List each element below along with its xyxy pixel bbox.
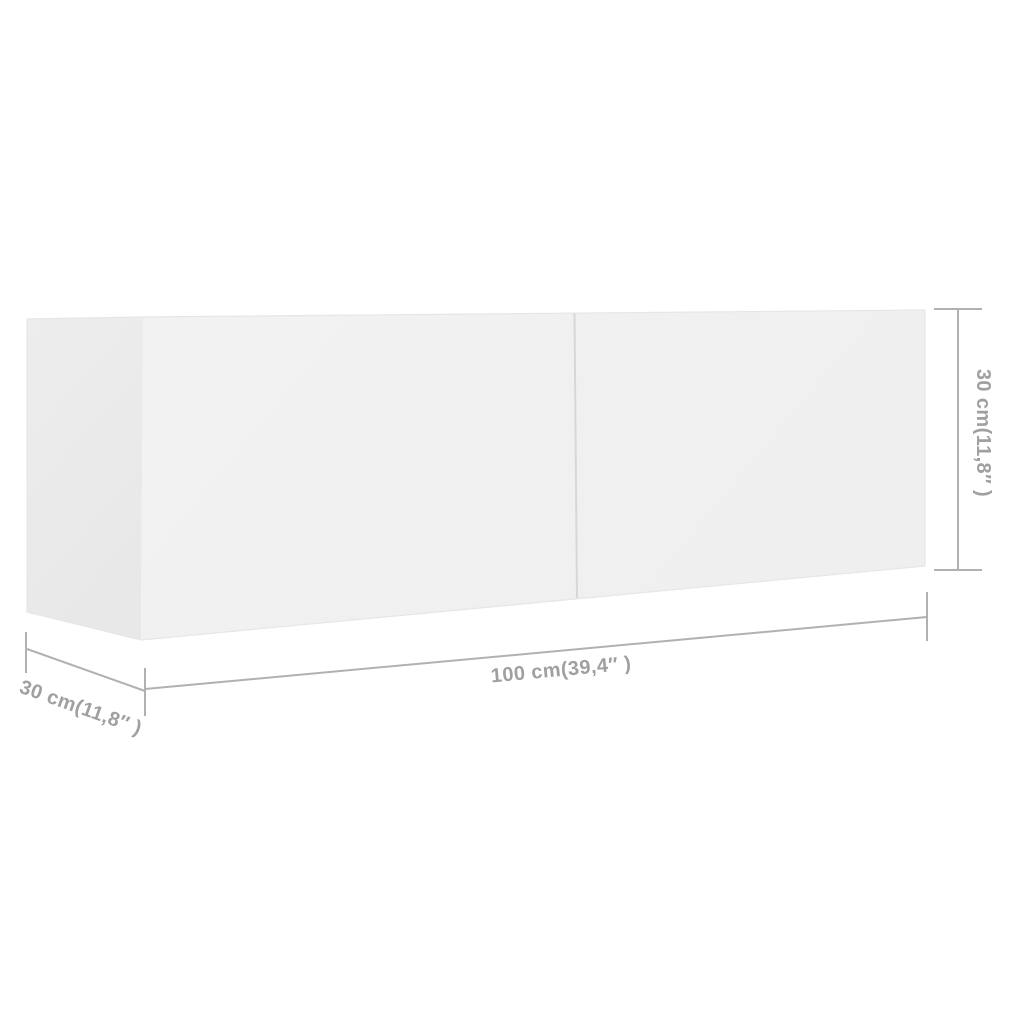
diagram-canvas: 100 cm(39,4″ ) 30 cm(11,8″ ) 30 cm(11,8″… bbox=[0, 0, 1024, 1024]
height-dimension-label: 30 cm(11,8″ ) bbox=[972, 369, 994, 497]
cabinet-front-face bbox=[141, 310, 925, 640]
product-diagram: 100 cm(39,4″ ) 30 cm(11,8″ ) 30 cm(11,8″… bbox=[0, 0, 1024, 1024]
height-dimension: 30 cm(11,8″ ) bbox=[934, 309, 994, 570]
width-dimension-label: 100 cm(39,4″ ) bbox=[490, 653, 632, 688]
depth-dimension-label: 30 cm(11,8″ ) bbox=[17, 676, 145, 740]
cabinet-render bbox=[27, 310, 925, 640]
cabinet-side-face bbox=[27, 317, 143, 640]
depth-dimension: 30 cm(11,8″ ) bbox=[17, 632, 145, 740]
